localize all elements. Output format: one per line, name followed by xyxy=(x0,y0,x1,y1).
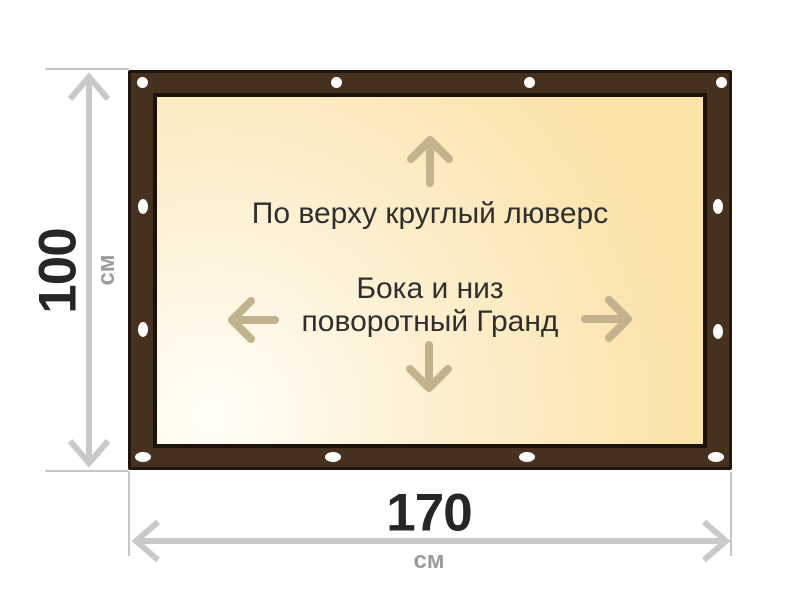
panel-note-top: По верху круглый люверс xyxy=(157,197,703,230)
extension-line xyxy=(128,472,130,556)
extension-line xyxy=(45,68,129,70)
banner-size-diagram: По верху круглый люверс Бока и низ повор… xyxy=(0,0,800,600)
panel-note-middle: Бока и низ поворотный Гранд xyxy=(157,272,703,338)
grommet xyxy=(138,199,148,214)
grommet xyxy=(716,77,727,88)
grommet xyxy=(135,452,151,462)
grommet xyxy=(708,452,724,462)
grommet xyxy=(325,452,341,462)
height-unit: см xyxy=(93,254,121,285)
panel-note-middle-line2: поворотный Гранд xyxy=(157,305,703,338)
panel-note-middle-line1: Бока и низ xyxy=(157,272,703,305)
grommet xyxy=(519,452,535,462)
width-unit: см xyxy=(413,547,444,575)
grommet xyxy=(713,324,723,339)
grommet xyxy=(138,322,148,337)
extension-line xyxy=(45,470,129,472)
width-value: 170 xyxy=(386,483,471,544)
grommet xyxy=(713,199,723,214)
grommet xyxy=(331,77,342,88)
up-arrow-icon xyxy=(406,133,454,187)
grommet xyxy=(524,77,535,88)
height-value: 100 xyxy=(28,228,89,313)
down-arrow-icon xyxy=(405,341,453,395)
grommet xyxy=(137,77,148,88)
